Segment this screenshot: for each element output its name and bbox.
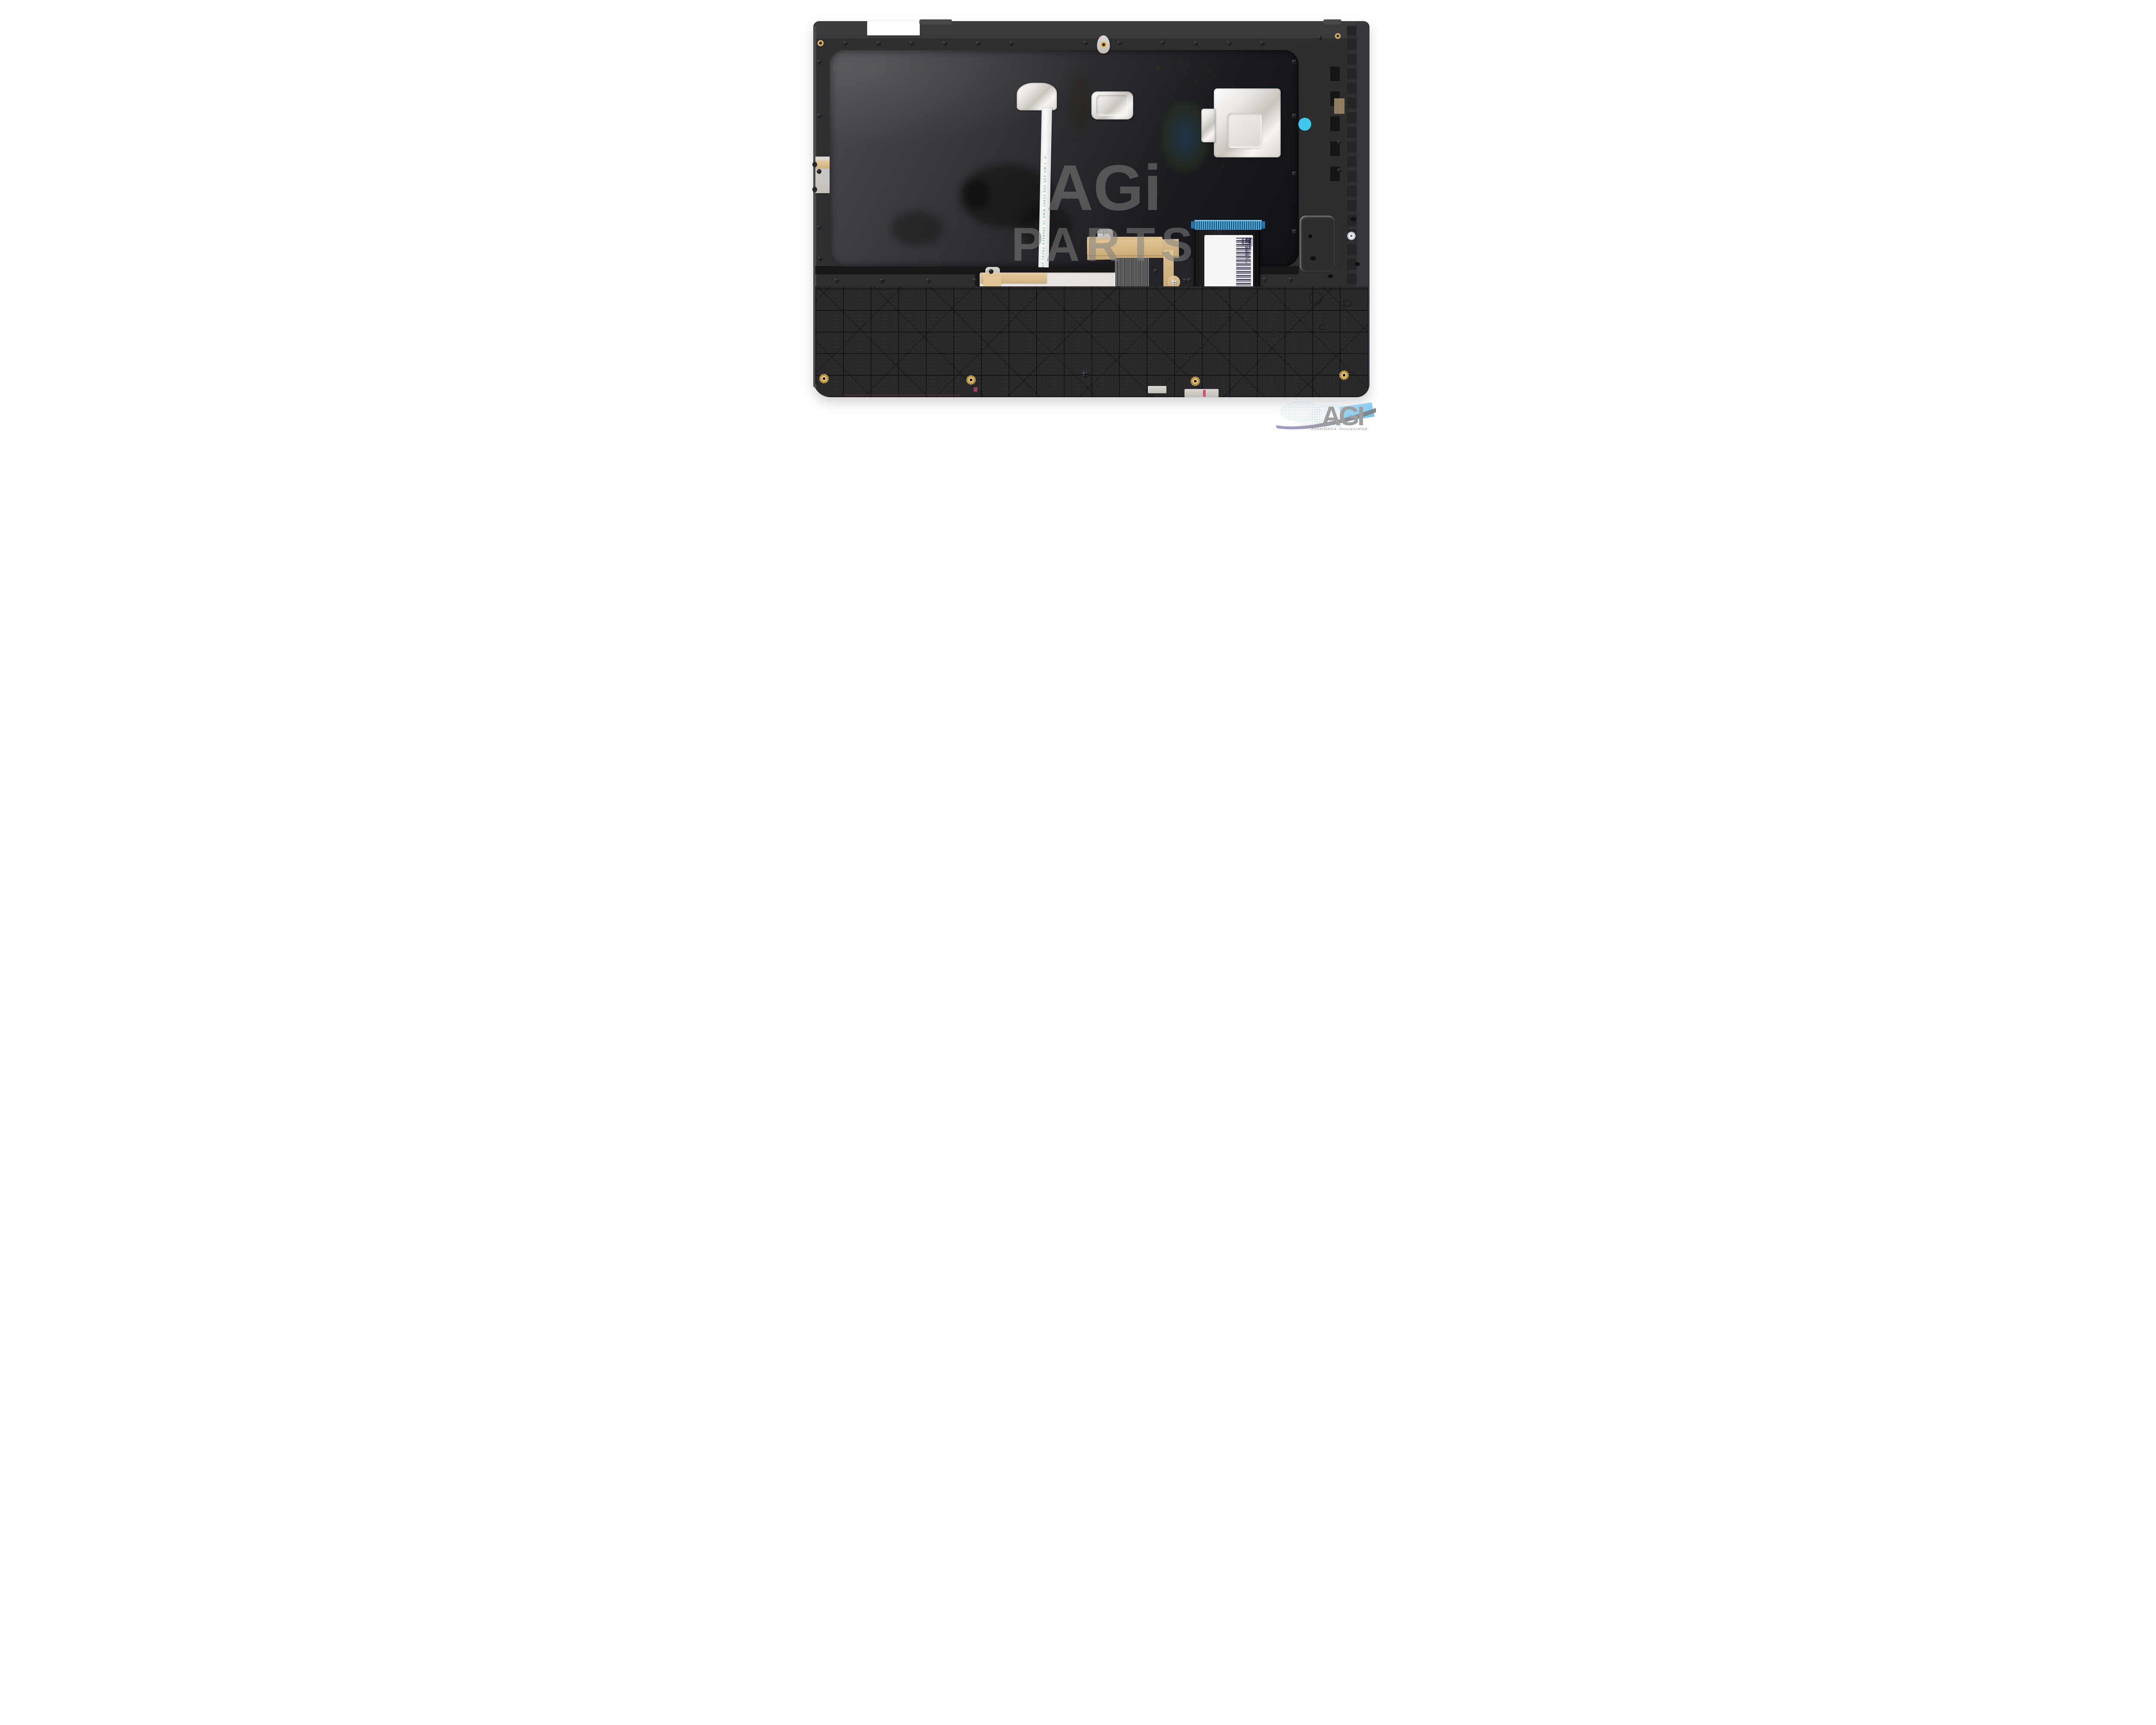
screw-black-icon (1292, 60, 1297, 64)
left-tab-hole (812, 187, 817, 192)
screw-black-icon (1292, 113, 1297, 118)
top-edge-tab (919, 19, 952, 25)
screw-black-icon (876, 41, 881, 46)
screw-black-icon (1082, 371, 1089, 378)
screw-black-icon (818, 257, 822, 261)
screw-black-icon (1160, 41, 1165, 45)
molded-text: N25 C Cover UK (1272, 297, 1277, 379)
mylar-sheen (964, 179, 990, 209)
rubber-pad-icon (1328, 274, 1333, 278)
mylar-smudge (1070, 73, 1090, 134)
screw-black-icon (1260, 41, 1265, 46)
brass-insert-icon (818, 40, 824, 46)
foil-sticker-pill-inner (1096, 95, 1128, 116)
bottom-center-bracket (1087, 237, 1163, 255)
screw-black-icon (926, 278, 931, 283)
kb-cable-connector-blue (1194, 220, 1262, 230)
screw-black-icon (976, 41, 981, 46)
screw-black-icon (834, 278, 839, 283)
left-tab-hole (812, 162, 817, 167)
screw-black-icon (817, 113, 821, 118)
screw-black-icon (880, 278, 884, 283)
brass-standoff-icon (966, 375, 976, 385)
screw-black-icon (1292, 171, 1297, 176)
rubber-pad-icon (1354, 262, 1360, 266)
silver-clip (1185, 389, 1219, 397)
bottom-texture-diagonals (815, 286, 1368, 397)
screw-black-icon (989, 269, 993, 274)
screw-black-icon (909, 41, 914, 46)
screw-black-icon (1227, 41, 1232, 46)
screw-black-icon (943, 41, 947, 46)
screw-black-icon (1009, 41, 1014, 46)
screw-silver-icon (1101, 231, 1106, 236)
foil-sticker-large-tab (1201, 109, 1215, 142)
hinge-teardrop-gold-hole (1100, 41, 1107, 48)
screw-black-icon (1117, 41, 1122, 45)
screw-black-icon (1318, 36, 1322, 40)
product-photo-laptop-palmrest: HF TATSU E308092 3L AWM 20624 80C 60V VW… (779, 0, 1378, 431)
screw-black-icon (1292, 229, 1297, 234)
screw-black-icon (1153, 269, 1158, 273)
pink-mark (974, 387, 978, 392)
cable-label-origin: Made in China (1246, 238, 1253, 243)
mold-mark-circle (1344, 299, 1351, 307)
screw-black-icon (817, 225, 821, 230)
screw-black-icon (1263, 277, 1267, 282)
screw-black-icon (817, 60, 821, 64)
pink-mark (1203, 390, 1206, 397)
top-edge-notch (867, 21, 920, 35)
silver-grommet-icon (1347, 232, 1356, 240)
silver-clip (1148, 386, 1166, 393)
screw-black-icon (817, 169, 821, 174)
foil-sticker-large-inner-square (1227, 113, 1262, 148)
bottom-edge-tint (843, 395, 960, 396)
screw-black-icon (1083, 41, 1088, 45)
brass-standoff-icon (1191, 376, 1200, 386)
mold-mark-circle (1319, 324, 1326, 330)
mold-mark-circle (1309, 292, 1322, 304)
screw-black-icon (1337, 168, 1341, 172)
plate-hole-icon (1307, 233, 1313, 239)
rubber-pad-icon (1310, 256, 1316, 260)
brass-standoff-icon (819, 374, 829, 383)
screw-black-icon (1337, 140, 1341, 144)
right-rib-strip (1347, 26, 1357, 285)
mylar-sheen (891, 211, 943, 246)
foil-sticker-dome (1017, 83, 1057, 110)
screw-black-icon (1187, 278, 1192, 282)
rubber-pad-icon (1351, 217, 1357, 221)
cyan-dot-sticker (1298, 118, 1311, 131)
screw-black-icon (1288, 277, 1293, 282)
emi-foam-patch (1334, 98, 1344, 114)
brass-insert-icon (1335, 33, 1341, 39)
screw-black-icon (1194, 41, 1198, 46)
plate-emboss-outline (1299, 215, 1336, 273)
brand-logo-company: AssetGenie Incorporated (1311, 427, 1368, 431)
kb-cable-connector-tab (1261, 221, 1265, 229)
brass-standoff-icon (1339, 370, 1349, 380)
screw-black-icon (972, 278, 977, 283)
top-edge-tab (1323, 19, 1341, 25)
screw-silver-icon (1172, 280, 1177, 285)
brand-logo-graphic: AGI AssetGenie Incorporated (1274, 398, 1378, 431)
right-slot-column (1330, 65, 1340, 181)
kb-cable-connector-tab (1191, 221, 1195, 229)
screw-black-icon (843, 41, 848, 46)
brand-logo: AGI AssetGenie Incorporated (1274, 398, 1378, 431)
